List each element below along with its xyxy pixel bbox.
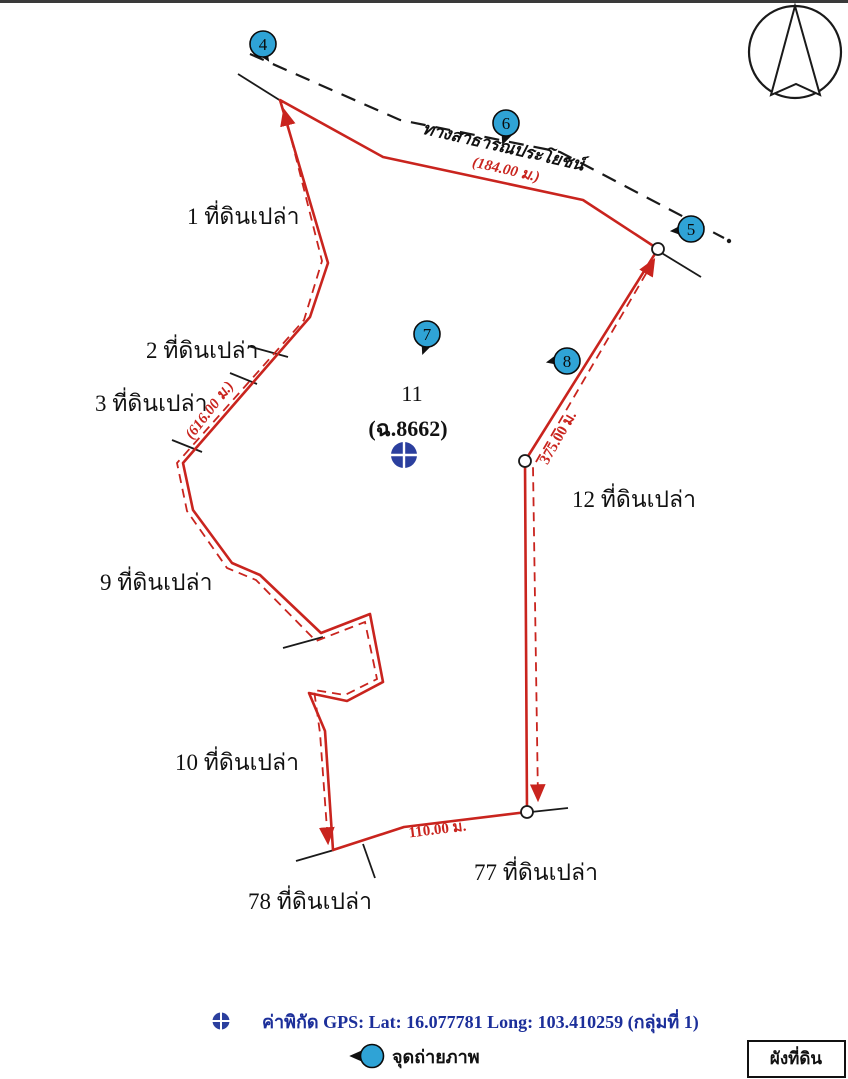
photo-marker-7: 7 — [414, 321, 440, 347]
tick-bottom-right-extension — [531, 808, 568, 812]
photo-marker-6-number: 6 — [502, 114, 511, 133]
title-box: ผังที่ดิน — [748, 1041, 845, 1077]
tick-neighbor-77-78 — [363, 844, 375, 878]
neighbor-label-77: 77 ที่ดินเปล่า — [474, 856, 598, 885]
photo-marker-8-number: 8 — [563, 352, 572, 371]
neighbor-label-9: 9 ที่ดินเปล่า — [100, 566, 213, 595]
legend-gps-icon — [212, 1012, 230, 1030]
parcel-deed-number: (ฉ.8662) — [368, 416, 447, 441]
photo-point-markers: 4 6 5 7 8 — [250, 31, 704, 374]
photo-marker-6: 6 — [493, 110, 519, 136]
neighbor-label-2: 2 ที่ดินเปล่า — [146, 334, 259, 363]
photo-marker-8: 8 — [554, 348, 580, 374]
title-box-label: ผังที่ดิน — [770, 1046, 823, 1068]
boundary-vertex-circles — [519, 243, 664, 818]
road-line-end-dot — [727, 239, 731, 243]
survey-dashed-line-east — [533, 260, 654, 800]
blue-circle-cross-icon — [388, 440, 420, 470]
photo-marker-7-number: 7 — [423, 325, 432, 344]
legend-photo-row: จุดถ่ายภาพ — [352, 1045, 480, 1070]
legend-gps-row: ค่าพิกัด GPS: Lat: 16.077781 Long: 103.4… — [212, 1009, 699, 1034]
land-plan-page: 4 6 5 7 8 ทางสาธารณประโยชน์ (184.00 ม.) … — [0, 0, 848, 1079]
photo-marker-4: 4 — [250, 31, 276, 57]
legend-photo-circle-icon — [361, 1045, 384, 1068]
dimension-east-label: 375.00 ม. — [537, 408, 580, 467]
neighbor-label-12: 12 ที่ดินเปล่า — [572, 483, 696, 512]
photo-marker-4-number: 4 — [259, 35, 268, 54]
photo-marker-5: 5 — [678, 216, 704, 242]
photo-marker-5-number: 5 — [687, 220, 696, 239]
dimension-south-label: 110.00 ม. — [408, 819, 468, 842]
parcel-number: 11 — [401, 381, 422, 406]
land-plan-drawing: 4 6 5 7 8 ทางสาธารณประโยชน์ (184.00 ม.) … — [0, 0, 848, 1079]
tick-neighbor-9-10 — [283, 637, 323, 648]
neighbor-label-10: 10 ที่ดินเปล่า — [175, 746, 299, 775]
compass-north-arrow-icon — [749, 6, 841, 98]
vertex-circle-northeast — [652, 243, 664, 255]
neighbor-label-1: 1 ที่ดินเปล่า — [187, 200, 300, 229]
tick-bottom-left-extension — [296, 850, 334, 861]
legend-gps-text: ค่าพิกัด GPS: Lat: 16.077781 Long: 103.4… — [262, 1009, 699, 1034]
vertex-circle-east-mid — [519, 455, 531, 467]
legend-photo-label: จุดถ่ายภาพ — [392, 1047, 480, 1069]
neighbor-label-3: 3 ที่ดินเปล่า — [95, 387, 208, 416]
page-top-border — [0, 0, 848, 3]
neighbor-label-78: 78 ที่ดินเปล่า — [248, 885, 372, 914]
tick-road-edge-left — [238, 74, 281, 101]
tick-right-top-extension — [660, 252, 701, 277]
vertex-circle-southeast — [521, 806, 533, 818]
